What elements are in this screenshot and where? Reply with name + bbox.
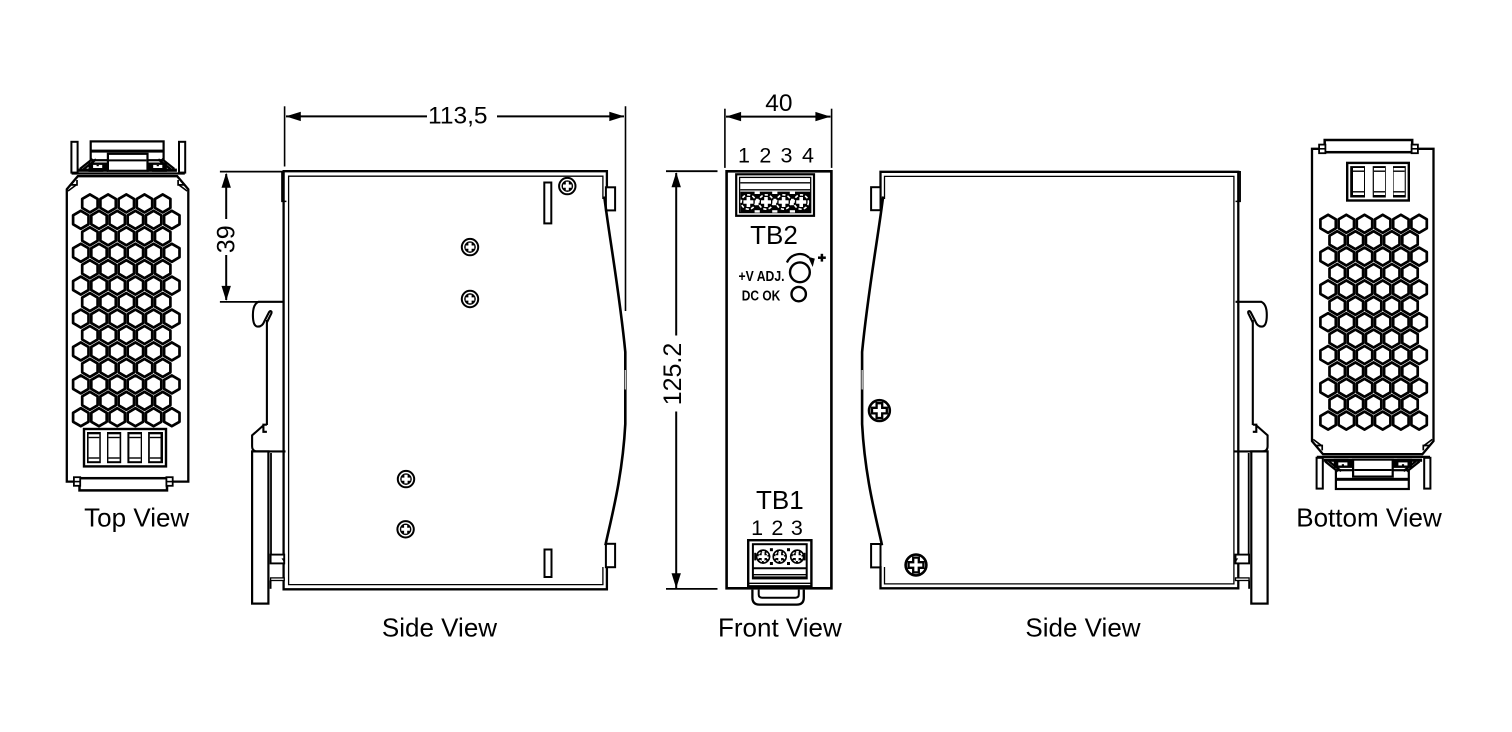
svg-text:125.2: 125.2: [659, 343, 687, 406]
svg-text:3: 3: [791, 516, 803, 540]
svg-text:113,5: 113,5: [428, 103, 488, 130]
svg-text:3: 3: [781, 143, 793, 167]
svg-text:4: 4: [802, 143, 814, 167]
svg-text:40: 40: [765, 90, 792, 117]
svg-text:Top View: Top View: [84, 503, 189, 533]
svg-text:Bottom View: Bottom View: [1296, 503, 1442, 533]
svg-text:2: 2: [771, 516, 783, 540]
svg-text:1: 1: [751, 516, 763, 540]
svg-text:TB2: TB2: [750, 220, 798, 250]
svg-text:+V ADJ.: +V ADJ.: [739, 269, 785, 285]
svg-text:Side View: Side View: [1025, 613, 1140, 643]
svg-text:Side View: Side View: [382, 613, 497, 643]
svg-text:Front View: Front View: [718, 613, 842, 643]
svg-text:1: 1: [738, 143, 750, 167]
svg-text:DC OK: DC OK: [742, 288, 781, 304]
svg-text:TB1: TB1: [756, 485, 804, 515]
svg-text:39: 39: [212, 225, 240, 253]
svg-text:2: 2: [759, 143, 771, 167]
